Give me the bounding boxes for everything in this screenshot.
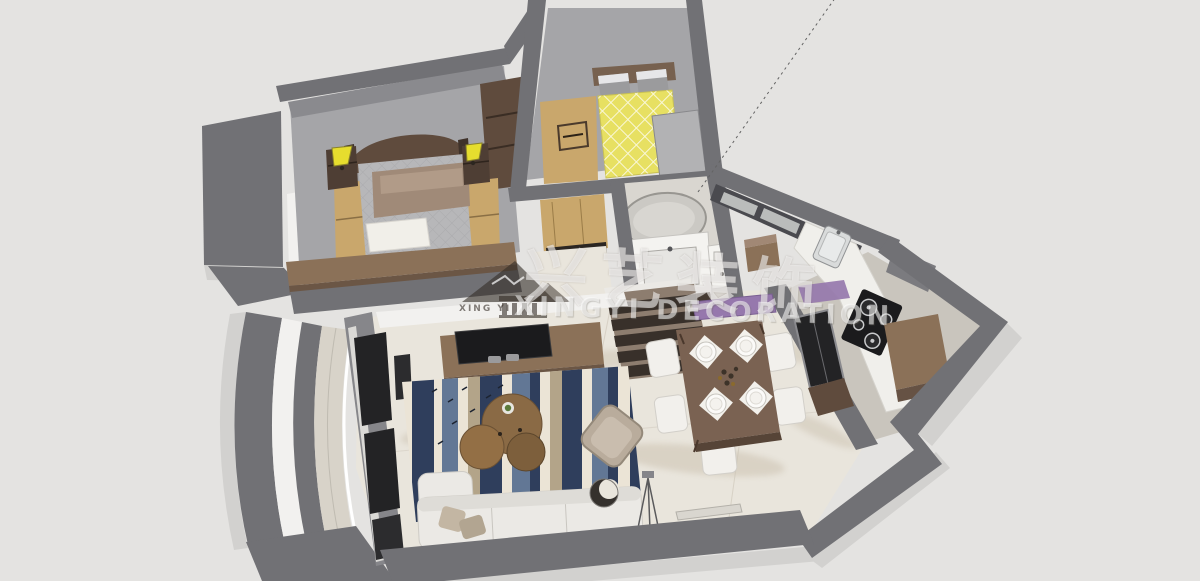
- bed2-gray-board: [652, 110, 706, 178]
- 3d-floorplan-viewport[interactable]: 兴艺装饰 XINGYI DECORATION XING YI: [0, 0, 1200, 581]
- bedside-lamp-icon: [466, 143, 482, 161]
- entry-cabinet-box: [744, 234, 780, 272]
- faucet-icon: [668, 247, 673, 252]
- master-bedroom: [276, 10, 534, 314]
- moon-decor: [590, 479, 619, 507]
- bed2-wardrobe: [540, 96, 598, 184]
- plant-icon: [505, 405, 511, 411]
- bedroom-2: [510, 0, 722, 192]
- master-white-pillow: [366, 218, 430, 252]
- scene-svg[interactable]: [0, 0, 1200, 581]
- balcony: [234, 312, 404, 581]
- nightstand-left: [326, 146, 358, 190]
- nightstand-right: [462, 143, 490, 185]
